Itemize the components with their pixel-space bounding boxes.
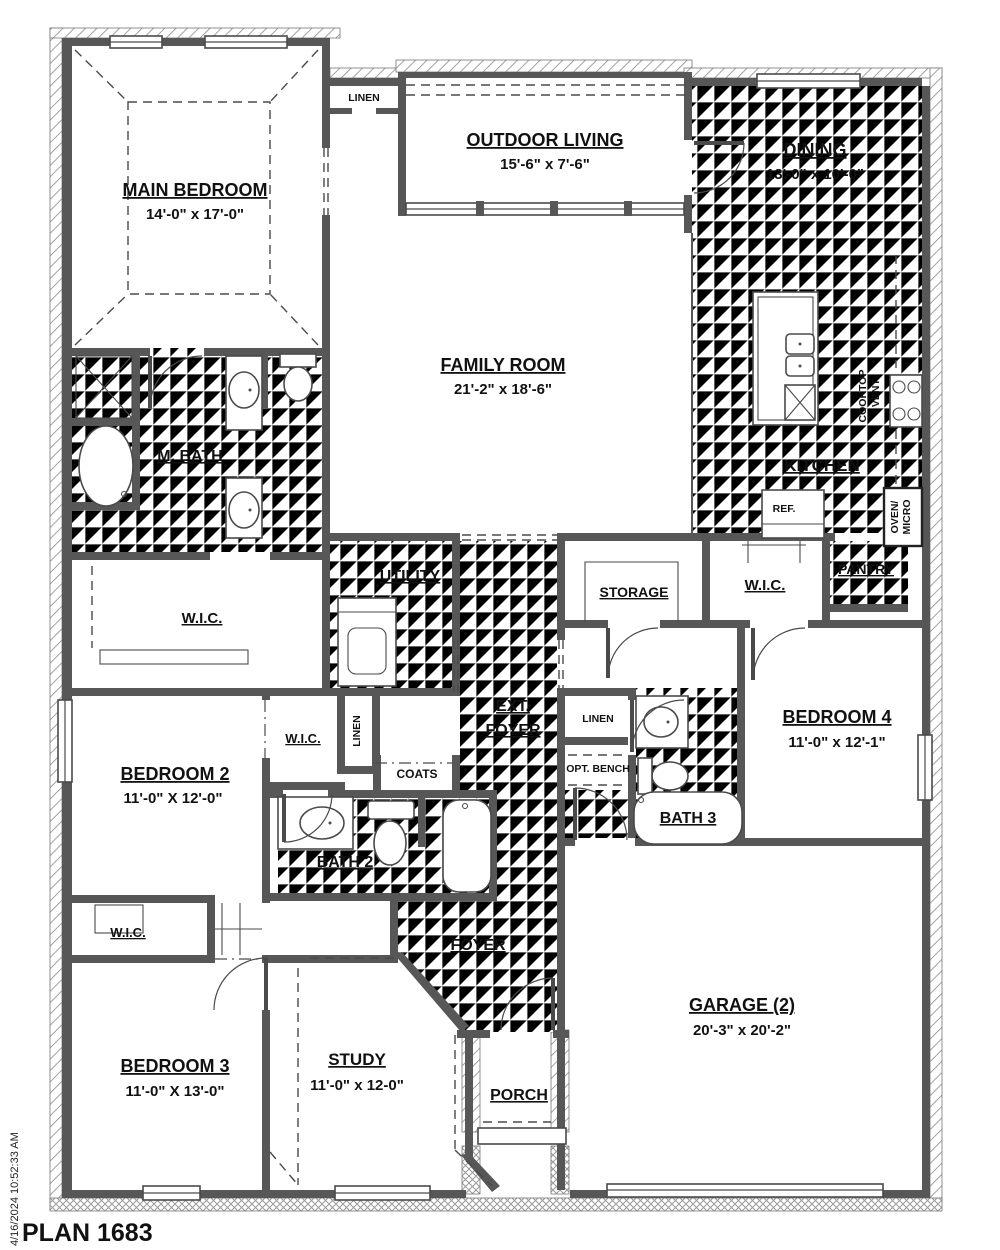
window-bedroom3 <box>143 1186 200 1200</box>
label-opt-bench: OPT. BENCH <box>566 763 630 775</box>
label-utility: UTILITY <box>380 568 441 585</box>
label-pantry: PANTRY <box>838 561 895 577</box>
master-vanity-1 <box>226 356 262 430</box>
label-cooktop-1: COOKTOP <box>857 370 869 423</box>
label-storage: STORAGE <box>600 584 669 600</box>
plot-timestamp: 4/16/2024 10:52:33 AM <box>9 1132 21 1246</box>
label-master-wic: W.I.C. <box>182 610 223 627</box>
window-bedroom2 <box>58 700 72 782</box>
garage-door <box>607 1184 883 1197</box>
label-bedroom2: BEDROOM 2 <box>120 764 229 784</box>
master-vanity-2 <box>226 478 262 538</box>
label-bedroom4-dims: 11'-0" x 12'-1" <box>788 734 885 751</box>
label-ext-foyer-2: FOYER <box>485 722 541 739</box>
label-family-room: FAMILY ROOM <box>440 355 565 375</box>
label-wic-bed3: W.I.C. <box>110 925 145 940</box>
label-bedroom3: BEDROOM 3 <box>120 1056 229 1076</box>
label-foyer: FOYER <box>450 937 506 954</box>
label-wic-bed2: W.I.C. <box>285 731 320 746</box>
label-main-bedroom-dims: 14'-0" x 17'-0" <box>146 206 244 223</box>
label-bedroom2-dims: 11'-0" X 12'-0" <box>124 790 223 807</box>
label-linen-hall: LINEN <box>582 713 614 725</box>
label-family-room-dims: 21'-2" x 18'-6" <box>454 381 552 398</box>
label-outdoor-living: OUTDOOR LIVING <box>467 130 624 150</box>
door-storage <box>608 628 658 678</box>
label-coats: COATS <box>396 767 437 781</box>
label-garage-dims: 20'-3" x 20'-2" <box>693 1022 791 1039</box>
bath2-shower <box>443 800 491 892</box>
label-porch: PORCH <box>490 1087 548 1104</box>
label-bath2: BATH 2 <box>317 854 374 871</box>
wic4-rods <box>742 541 806 563</box>
door-bedroom4 <box>753 628 805 680</box>
title-block: PLAN 1683 4/16/2024 10:52:33 AM <box>9 1132 153 1247</box>
floor-plan-page: MAIN BEDROOM 14'-0" x 17'-0" LINEN OUTDO… <box>0 0 1000 1250</box>
label-oven-2: MICRO <box>901 500 913 535</box>
utility-washer <box>338 598 396 686</box>
label-ext-foyer-1: EXT. <box>496 698 530 715</box>
label-linen-side: LINEN <box>351 715 363 747</box>
label-wic-bed4: W.I.C. <box>745 577 786 594</box>
label-cooktop-2: / VENT <box>870 378 882 412</box>
label-ref: REF. <box>773 503 796 515</box>
label-study: STUDY <box>328 1050 386 1069</box>
master-tub <box>79 426 133 506</box>
label-outdoor-living-dims: 15'-6" x 7'-6" <box>500 156 590 173</box>
plan-title: PLAN 1683 <box>22 1219 153 1247</box>
label-linen-top: LINEN <box>348 92 380 104</box>
bath3-vanity <box>636 696 688 748</box>
window-bedroom4 <box>918 735 932 800</box>
label-oven-1: OVEN/ <box>889 501 901 534</box>
outdoor-living-window-row <box>406 201 684 216</box>
master-wic-bench <box>92 566 248 664</box>
kitchen-island <box>753 292 818 425</box>
porch-step <box>478 1128 566 1144</box>
label-study-dims: 11'-0" x 12-0" <box>310 1077 404 1094</box>
label-main-bedroom: MAIN BEDROOM <box>123 180 268 200</box>
label-m-bath: M. BATH <box>157 448 222 465</box>
door-bedroom3 <box>214 958 266 1010</box>
floor-plan-canvas: MAIN BEDROOM 14'-0" x 17'-0" LINEN OUTDO… <box>0 0 1000 1250</box>
window-study <box>335 1186 430 1200</box>
label-dining: DINING <box>784 140 847 160</box>
label-dining-dims: 13'-0" x 10'-0" <box>766 166 864 183</box>
label-bath3: BATH 3 <box>660 810 717 827</box>
label-kitchen: KITCHEN <box>784 456 860 475</box>
label-bedroom4: BEDROOM 4 <box>782 707 891 727</box>
label-garage: GARAGE (2) <box>689 995 795 1015</box>
window-dining <box>757 74 860 88</box>
cooktop <box>890 375 922 427</box>
label-bedroom3-dims: 11'-0" X 13'-0" <box>126 1083 225 1100</box>
